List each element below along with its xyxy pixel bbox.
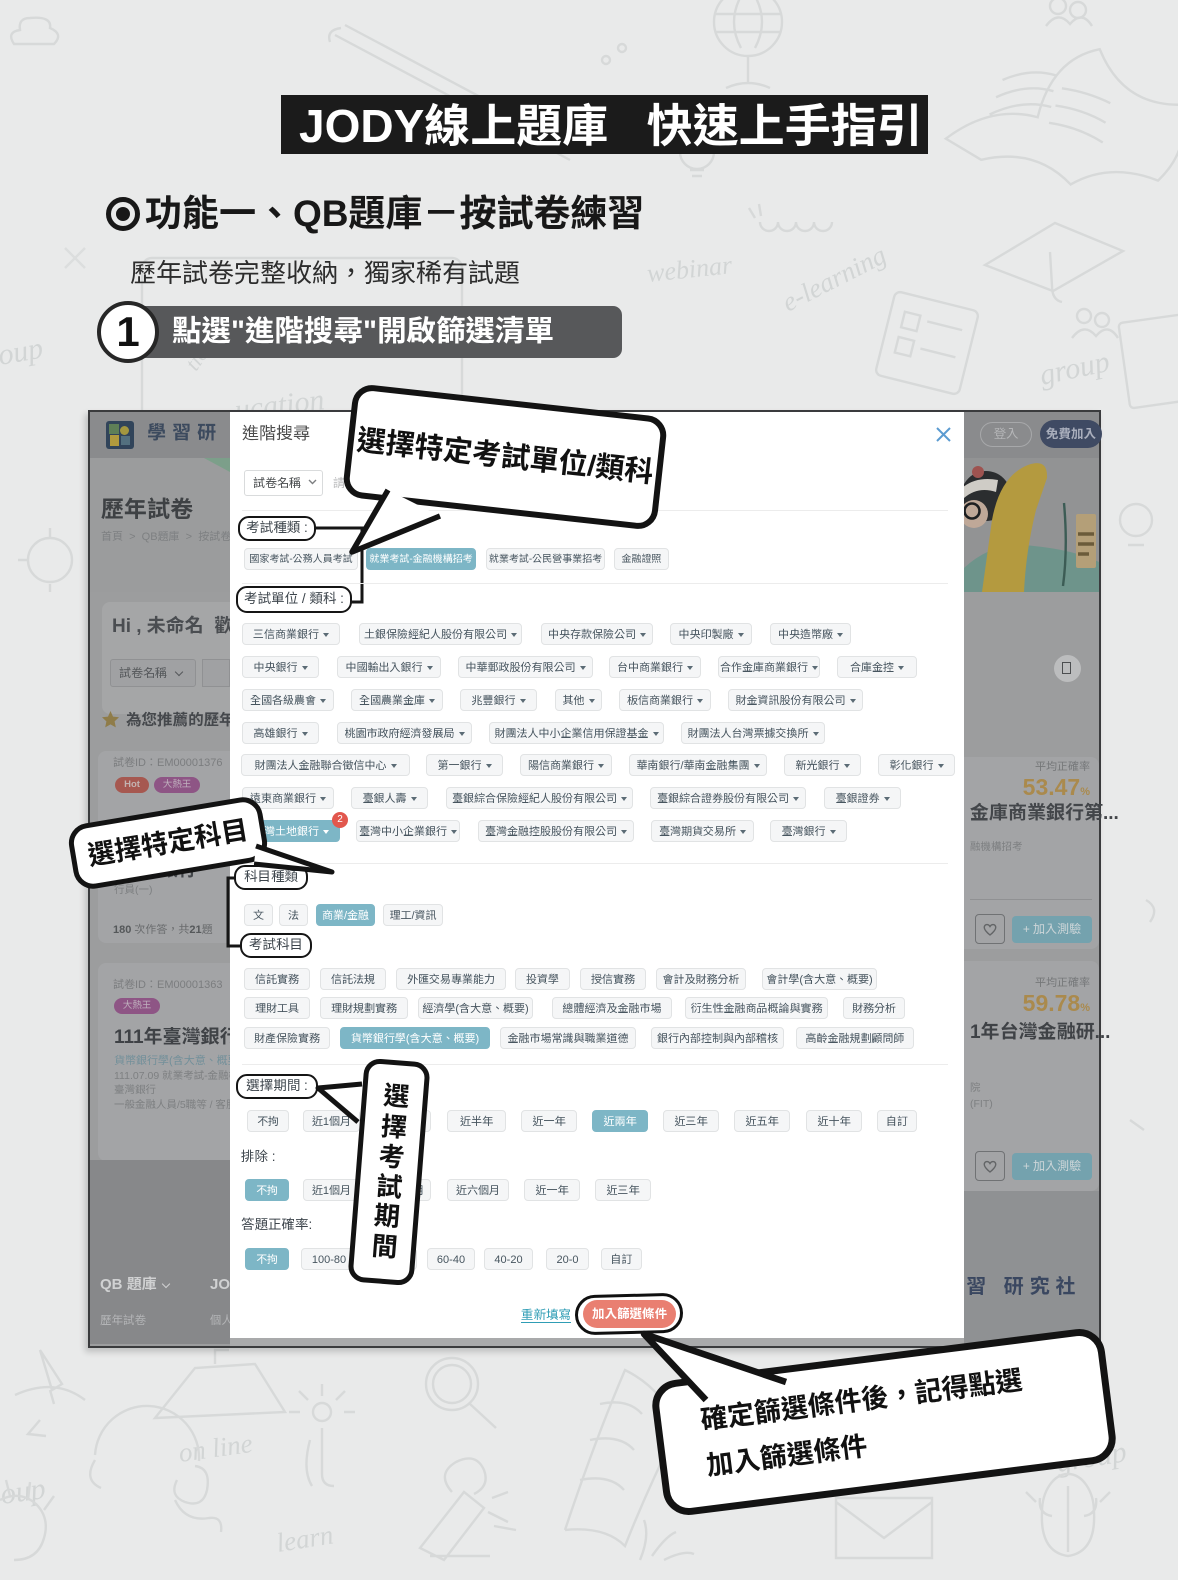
svg-text:e-learning: e-learning — [777, 240, 891, 318]
svg-text:group: group — [1037, 345, 1113, 392]
svg-text:on line: on line — [177, 1428, 255, 1468]
svg-text:oup: oup — [0, 1472, 48, 1511]
svg-text:learn: learn — [274, 1519, 335, 1558]
svg-text:oup: oup — [0, 332, 46, 372]
svg-text:webinar: webinar — [646, 250, 735, 288]
